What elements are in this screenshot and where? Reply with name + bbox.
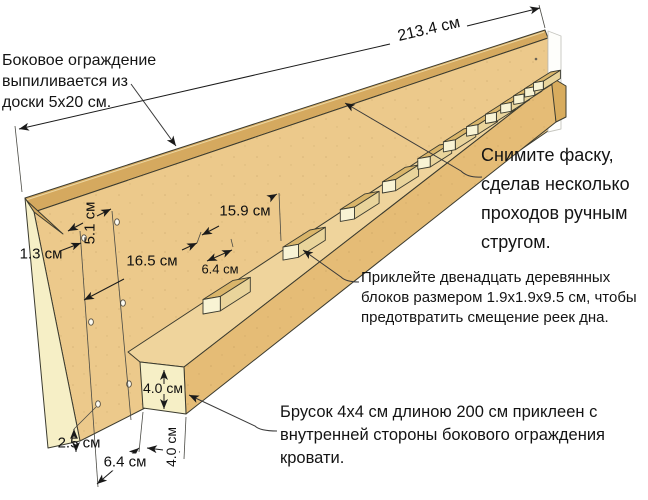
block-front-face (501, 103, 512, 114)
dim-hole-column-spacing: 5.1 см (82, 202, 99, 245)
note-line: Снимите фаску, (481, 141, 630, 170)
block-front-face (467, 125, 478, 137)
note-line: блоков размером 1.9х1.9х9.5 см, чтобы (361, 288, 637, 308)
block-front-face (283, 244, 299, 260)
block-front-face (486, 112, 497, 123)
note-line: доски 5х20 см. (2, 92, 156, 113)
note-line: Боковое ограждение (2, 50, 156, 71)
block-front-face (340, 207, 354, 221)
note-line: выпиливается из (2, 71, 156, 92)
note-line: предотвратить смещение реек дна. (361, 308, 637, 328)
dim-block-length: 6.4 см (201, 262, 238, 277)
note-line: проходов ручным (481, 199, 630, 228)
dim-board-end-to-cleat: 6.4 см (102, 454, 149, 471)
note-line: стругом. (481, 228, 630, 257)
block-front-face (514, 94, 524, 104)
note-line: Приклейте двенадцать деревянных (361, 268, 637, 288)
chamfer-note: Снимите фаску, сделав несколько проходов… (481, 141, 630, 257)
dim-overall-right (467, 8, 540, 26)
block-front-face (418, 157, 430, 170)
dim-block-spacing: 15.9 см (219, 203, 270, 220)
dim-cleat-height: 4.0 см (143, 380, 183, 396)
note-line: сделав несколько (481, 170, 630, 199)
board-note: Боковое ограждение выпиливается из доски… (2, 50, 156, 113)
note-line: внутренней стороны бокового ограждения (280, 424, 605, 447)
note-line: кровати. (280, 447, 605, 470)
dim-edge-to-hole: 1.3 см (20, 246, 63, 263)
block-front-face (534, 81, 544, 91)
block-front-face (203, 296, 220, 314)
cleat-note: Брусок 4х4 см длиною 200 см приклеен с в… (280, 401, 605, 470)
woodworking-plan: Боковое ограждение выпиливается из доски… (0, 0, 648, 500)
block-front-face (443, 140, 455, 152)
block-front-face (382, 180, 395, 194)
dim-hole-to-bottom-edge: 2.5 см (58, 435, 101, 452)
dim-cleat-depth: 4.0 см (163, 425, 179, 469)
dim-hole-to-block: 16.5 см (126, 253, 177, 270)
blocks-note: Приклейте двенадцать деревянных блоков р… (361, 268, 637, 328)
note-line: Брусок 4х4 см длиною 200 см приклеен с (280, 401, 605, 424)
